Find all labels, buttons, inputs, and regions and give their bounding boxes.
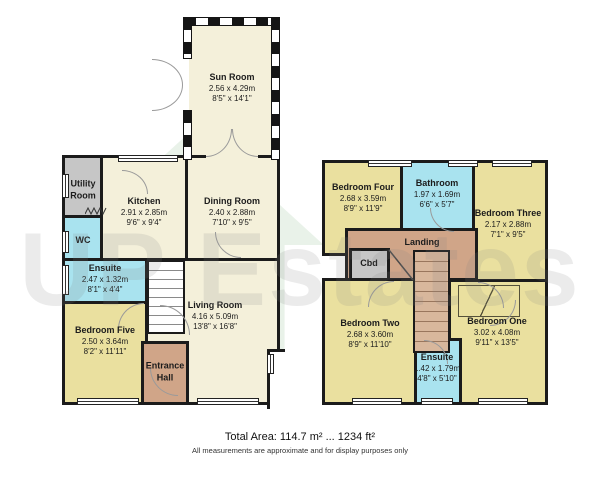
bedroom-four-window (368, 160, 412, 167)
wc-window (62, 231, 69, 253)
footer: Total Area: 114.7 m² ... 1234 ft² All me… (0, 431, 600, 455)
kitchen-window (118, 155, 178, 162)
bedroom-two-window (352, 398, 402, 405)
sun-room-window-wall-left-upper (183, 17, 192, 59)
utility-window (62, 174, 69, 198)
room-bedroom-three (472, 160, 548, 282)
bedroom-five-window (77, 398, 139, 405)
floorplan-canvas: Sun Room 2.56 x 4.29m 8'5" x 14'1" Utili… (0, 0, 600, 486)
living-window (197, 398, 259, 405)
total-area-text: Total Area: 114.7 m² ... 1234 ft² (0, 431, 600, 443)
cbd-door-line (388, 249, 414, 281)
sun-room-door-arc-lower (152, 85, 183, 111)
sun-room-door-arc-upper (152, 59, 183, 85)
room-kitchen (100, 155, 188, 261)
sun-room-window-wall-right (271, 17, 280, 160)
room-ensuite-ground (62, 258, 148, 304)
disclaimer-text: All measurements are approximate and for… (0, 446, 600, 455)
sun-room-window-wall-top (183, 17, 280, 26)
ensuite-ground-window (62, 265, 69, 295)
room-cbd (349, 248, 390, 281)
bedroom-one-window (478, 398, 528, 405)
french-door-gap (206, 155, 258, 162)
radiator-icon (85, 206, 107, 216)
sun-room-interior (189, 24, 275, 160)
stairs-first (413, 250, 450, 353)
bathroom-window (448, 160, 478, 167)
sun-room-window-wall-left-lower (183, 110, 192, 160)
living-side-window (267, 354, 274, 374)
bedroom-three-window (492, 160, 532, 167)
ensuite-first-window (421, 398, 453, 405)
